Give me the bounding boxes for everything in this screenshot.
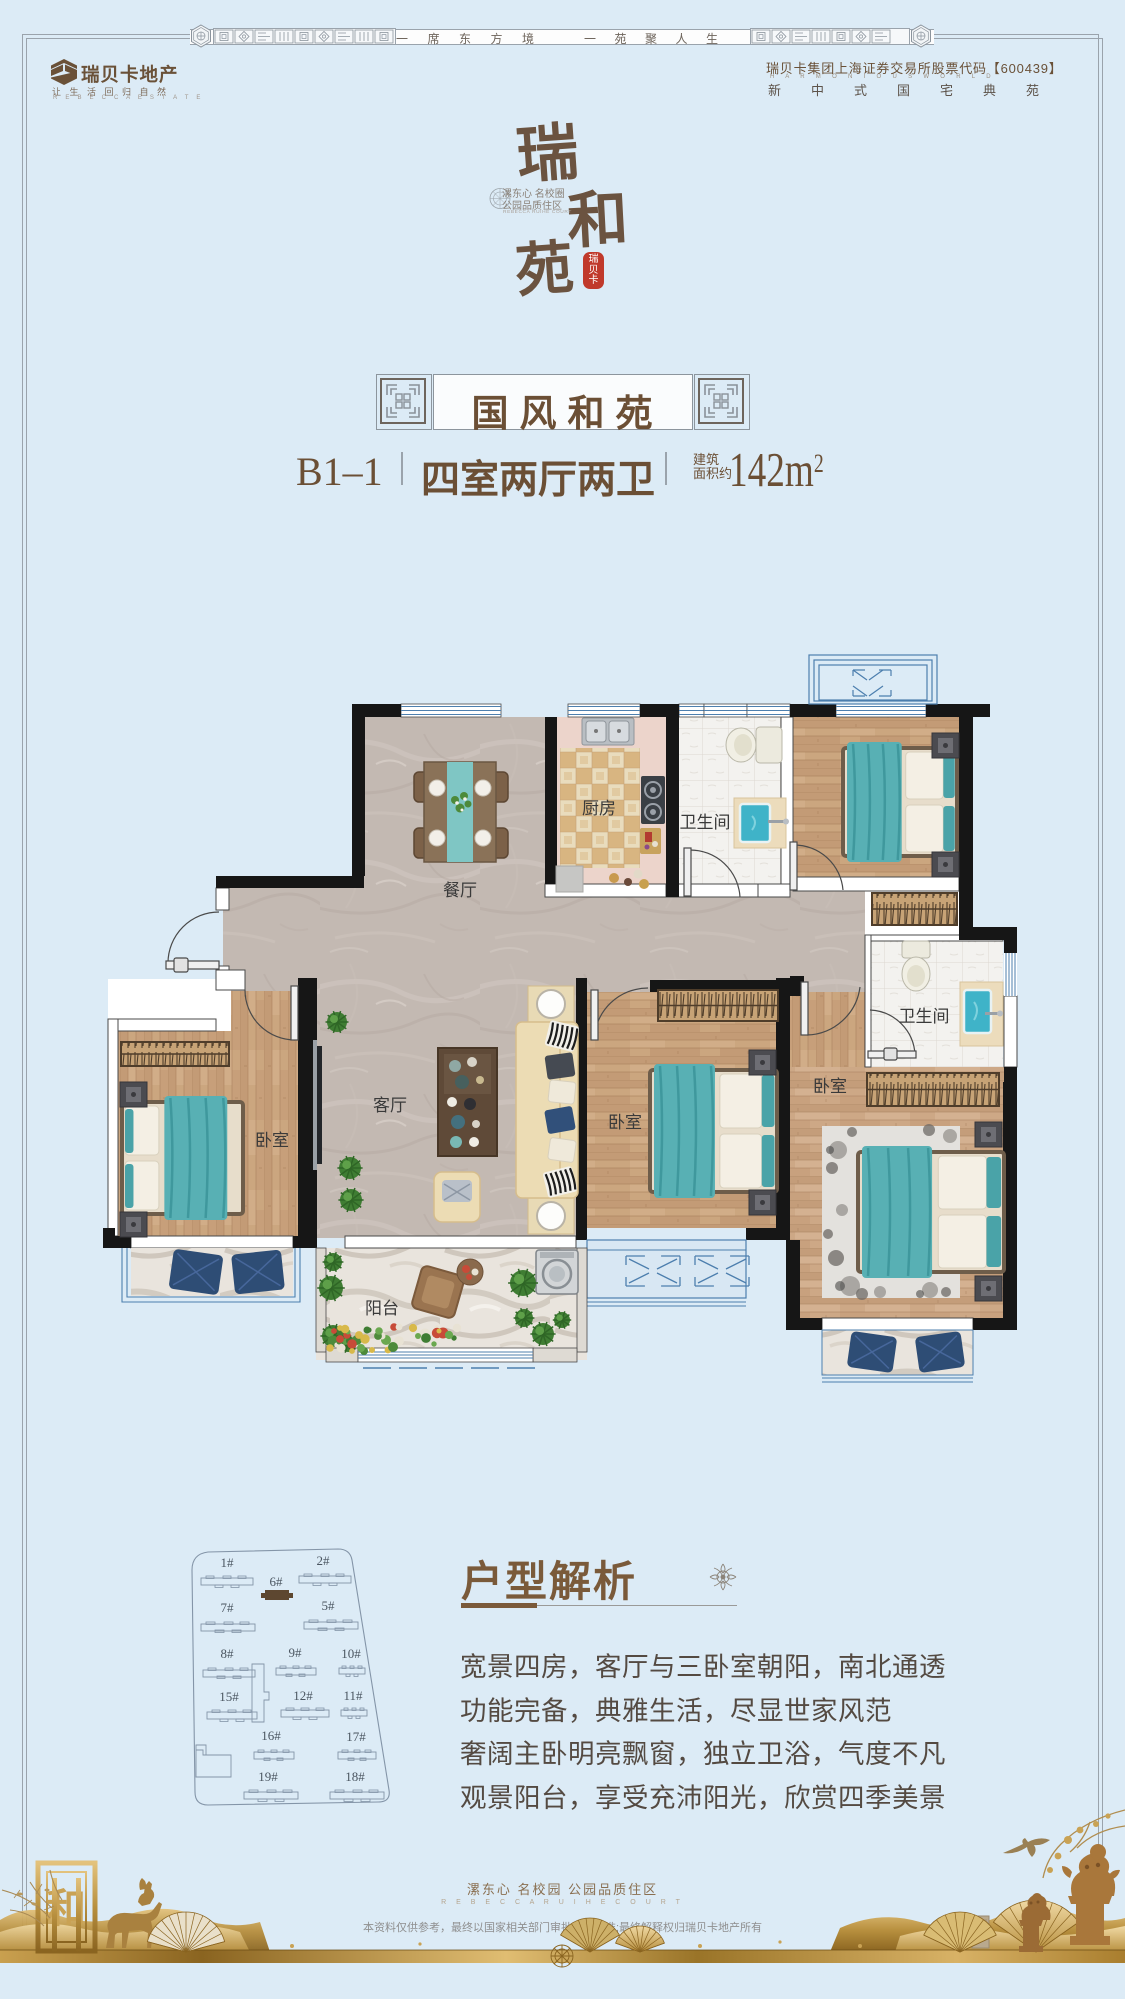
svg-text:2#: 2# — [317, 1553, 331, 1568]
svg-text:5#: 5# — [322, 1598, 336, 1613]
svg-text:12#: 12# — [293, 1688, 313, 1703]
svg-text:8#: 8# — [221, 1646, 235, 1661]
svg-text:1#: 1# — [221, 1555, 235, 1570]
svg-text:9#: 9# — [289, 1645, 303, 1660]
svg-text:11#: 11# — [343, 1688, 363, 1703]
svg-text:7#: 7# — [221, 1600, 235, 1615]
svg-text:16#: 16# — [261, 1728, 281, 1743]
svg-text:6#: 6# — [270, 1574, 284, 1589]
svg-text:17#: 17# — [346, 1729, 366, 1744]
svg-text:10#: 10# — [341, 1646, 361, 1661]
svg-text:15#: 15# — [219, 1689, 239, 1704]
